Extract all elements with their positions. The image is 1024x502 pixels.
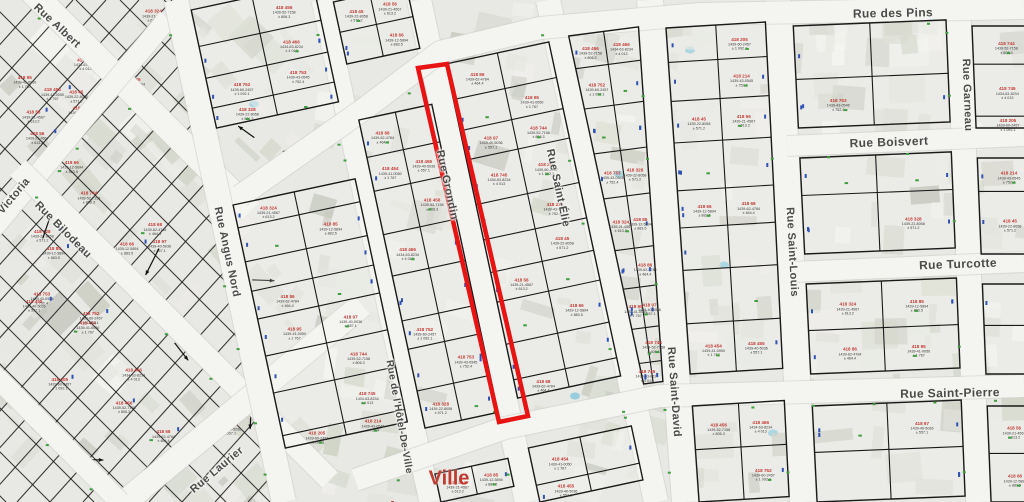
svg-text:± 752.4: ± 752.4 (460, 365, 472, 369)
svg-text:± 806.3: ± 806.3 (426, 207, 438, 211)
svg-text:± 1 092.1: ± 1 092.1 (732, 47, 747, 51)
svg-text:418 454: 418 454 (44, 87, 61, 92)
svg-text:± 752.4: ± 752.4 (292, 80, 304, 84)
svg-text:± 571.2: ± 571.2 (907, 226, 919, 230)
svg-text:± 613.2: ± 613.2 (451, 490, 463, 494)
svg-text:± 464.4: ± 464.4 (471, 82, 483, 86)
svg-text:± 1 092.1: ± 1 092.1 (52, 387, 67, 391)
svg-text:418 745: 418 745 (359, 391, 376, 396)
svg-text:± 557.1: ± 557.1 (485, 145, 497, 149)
svg-text:418 205: 418 205 (1000, 118, 1017, 123)
svg-text:± 752.4: ± 752.4 (367, 428, 379, 432)
svg-text:± 464.4: ± 464.4 (844, 356, 856, 360)
svg-text:418 68: 418 68 (376, 131, 390, 136)
svg-text:± 571.2: ± 571.2 (70, 99, 82, 103)
svg-text:418 205: 418 205 (538, 162, 555, 167)
svg-text:± 464.4: ± 464.4 (157, 439, 169, 443)
svg-text:418 753: 418 753 (290, 70, 307, 75)
map-canvas[interactable]: 418 451439-22-8058± 571.2418 561439-21-4… (0, 0, 1024, 502)
svg-text:± 571.2: ± 571.2 (556, 246, 568, 250)
svg-text:418 56: 418 56 (383, 2, 397, 7)
svg-text:418 95: 418 95 (287, 327, 301, 332)
svg-text:418 744: 418 744 (81, 191, 98, 196)
parcel-block: 418 7531439-43-0545± 752.4 (793, 20, 950, 128)
svg-text:± 464.4: ± 464.4 (149, 232, 161, 236)
svg-text:418 752: 418 752 (234, 82, 251, 87)
svg-text:± 4 013: ± 4 013 (755, 430, 767, 434)
svg-text:± 1 767: ± 1 767 (288, 336, 300, 340)
svg-text:± 557.1: ± 557.1 (750, 351, 762, 355)
svg-text:± 806.3: ± 806.3 (83, 200, 95, 204)
svg-text:418 745: 418 745 (491, 172, 508, 177)
svg-text:418 205: 418 205 (309, 431, 326, 436)
svg-text:418 45: 418 45 (692, 117, 706, 122)
svg-text:418 456: 418 456 (710, 422, 727, 427)
svg-text:± 752.4: ± 752.4 (832, 108, 844, 112)
svg-text:± 1 767: ± 1 767 (384, 176, 396, 180)
parcel-block: 418 971439-40-5036± 557.1 (812, 400, 965, 502)
parcel-block: 418 4561439-52-7158± 806.3418 4661434-63… (692, 401, 789, 502)
svg-text:418 744: 418 744 (645, 340, 662, 345)
svg-text:± 806.3: ± 806.3 (118, 410, 130, 414)
svg-text:418 456: 418 456 (116, 400, 133, 405)
svg-text:± 557.1: ± 557.1 (28, 309, 40, 313)
svg-text:418 324: 418 324 (840, 302, 857, 307)
svg-text:418 753: 418 753 (604, 171, 621, 176)
svg-text:418 97: 418 97 (484, 135, 498, 140)
svg-text:± 4 013: ± 4 013 (128, 378, 140, 382)
svg-text:± 1 767: ± 1 767 (46, 97, 58, 101)
svg-text:± 464.4: ± 464.4 (537, 389, 549, 393)
svg-text:± 557.1: ± 557.1 (560, 493, 572, 497)
svg-text:± 571.2: ± 571.2 (435, 411, 447, 415)
svg-text:418 455: 418 455 (415, 159, 432, 164)
svg-text:418 68: 418 68 (148, 222, 162, 227)
svg-text:418 66: 418 66 (390, 33, 404, 38)
svg-text:± 806.3: ± 806.3 (584, 56, 596, 60)
svg-text:418 85: 418 85 (633, 217, 647, 222)
svg-text:418 68: 418 68 (536, 379, 550, 384)
svg-text:418 86: 418 86 (843, 347, 857, 352)
svg-text:± 4 013: ± 4 013 (493, 182, 505, 186)
svg-text:418 456: 418 456 (276, 5, 293, 10)
svg-text:± 464.4: ± 464.4 (742, 211, 754, 215)
svg-text:± 557.1: ± 557.1 (916, 431, 928, 435)
svg-text:418 45: 418 45 (555, 236, 569, 241)
svg-text:± 752.4: ± 752.4 (549, 212, 561, 216)
svg-text:418 214: 418 214 (1001, 171, 1018, 176)
svg-text:± 883.5: ± 883.5 (121, 251, 133, 255)
svg-text:± 1 767: ± 1 767 (526, 105, 538, 109)
svg-text:418 752: 418 752 (83, 311, 100, 316)
svg-text:418 66: 418 66 (120, 242, 134, 247)
svg-text:418 205: 418 205 (52, 377, 69, 382)
svg-text:418 97: 418 97 (344, 314, 358, 319)
svg-text:418 328: 418 328 (627, 168, 644, 173)
svg-text:418 324: 418 324 (612, 219, 629, 224)
svg-text:± 571.2: ± 571.2 (36, 239, 48, 243)
svg-text:418 744: 418 744 (350, 351, 367, 356)
parcel-block: 418 2141439-43-0545± 752.4418 451439-22-… (977, 158, 1024, 254)
svg-text:± 4 013: ± 4 013 (1001, 96, 1013, 100)
svg-text:418 454: 418 454 (705, 343, 722, 348)
svg-text:418 56: 418 56 (515, 277, 529, 282)
svg-text:418 752: 418 752 (755, 468, 772, 473)
svg-text:418 466: 418 466 (399, 247, 416, 252)
svg-text:418 205: 418 205 (731, 37, 748, 42)
svg-text:± 464.4: ± 464.4 (281, 304, 293, 308)
svg-text:± 613.2: ± 613.2 (515, 287, 527, 291)
svg-text:418 68: 418 68 (156, 429, 170, 434)
svg-text:418 85: 418 85 (324, 222, 338, 227)
svg-text:± 613.2: ± 613.2 (31, 141, 43, 145)
svg-text:± 571.2: ± 571.2 (629, 177, 641, 181)
svg-text:418 753: 418 753 (458, 355, 475, 360)
svg-text:418 456: 418 456 (582, 46, 599, 51)
svg-text:418 95: 418 95 (525, 95, 539, 100)
svg-text:± 1 092.1: ± 1 092.1 (1000, 128, 1015, 132)
svg-text:± 806.3: ± 806.3 (278, 15, 290, 19)
svg-text:418 86: 418 86 (470, 72, 484, 77)
svg-text:± 613.2: ± 613.2 (615, 229, 627, 233)
svg-text:± 1 092.1: ± 1 092.1 (234, 92, 249, 96)
svg-text:± 1 092.1: ± 1 092.1 (589, 92, 604, 96)
svg-text:418 466: 418 466 (613, 42, 630, 47)
svg-text:± 571.2: ± 571.2 (350, 19, 362, 23)
parcel-block: 418 3241439-21-4567± 613.2418 851439-12-… (806, 278, 960, 374)
parcel-block (982, 284, 1024, 374)
svg-text:418 456: 418 456 (424, 198, 441, 203)
svg-text:± 883.5: ± 883.5 (634, 227, 646, 231)
svg-text:418 85: 418 85 (484, 473, 498, 478)
parcel-block: 418 561439-21-4567± 613.2418 661439-12-5… (987, 406, 1024, 502)
svg-text:± 613.2: ± 613.2 (384, 11, 396, 15)
svg-text:± 1 092.1: ± 1 092.1 (417, 337, 432, 341)
svg-text:418 66: 418 66 (697, 204, 711, 209)
svg-text:418 454: 418 454 (382, 166, 399, 171)
svg-text:418 324: 418 324 (260, 205, 277, 210)
svg-text:± 883.5: ± 883.5 (390, 42, 402, 46)
svg-text:± 464.4: ± 464.4 (639, 272, 651, 276)
svg-text:418 45: 418 45 (69, 90, 83, 95)
svg-text:± 1 767: ± 1 767 (19, 85, 31, 89)
svg-text:418 455: 418 455 (748, 341, 765, 346)
svg-text:± 752.4: ± 752.4 (606, 180, 618, 184)
svg-text:418 95: 418 95 (912, 344, 926, 349)
svg-text:418 45: 418 45 (1003, 219, 1017, 224)
svg-text:418 752: 418 752 (416, 327, 433, 332)
street-rue-turcotte[interactable] (793, 262, 1024, 272)
svg-text:418 744: 418 744 (998, 41, 1015, 46)
svg-text:418 466: 418 466 (752, 420, 769, 425)
svg-text:418 745: 418 745 (999, 86, 1016, 91)
svg-text:418 95: 418 95 (18, 75, 32, 80)
svg-text:± 613.2: ± 613.2 (262, 215, 274, 219)
svg-text:418 66: 418 66 (1008, 474, 1022, 479)
svg-text:± 571.2: ± 571.2 (693, 126, 705, 130)
svg-text:418 744: 418 744 (530, 125, 547, 130)
svg-text:± 883.5: ± 883.5 (48, 256, 60, 260)
svg-text:± 4 013: ± 4 013 (641, 379, 653, 383)
svg-text:418 753: 418 753 (830, 98, 847, 103)
svg-text:± 4 013: ± 4 013 (615, 52, 627, 56)
svg-text:418 753: 418 753 (34, 292, 51, 297)
svg-text:± 557.1: ± 557.1 (153, 249, 165, 253)
svg-text:± 557.1: ± 557.1 (418, 169, 430, 173)
svg-text:418 752: 418 752 (589, 83, 606, 88)
svg-text:418 214: 418 214 (547, 202, 564, 207)
svg-text:± 883.5: ± 883.5 (325, 232, 337, 236)
svg-text:± 613.2: ± 613.2 (842, 311, 854, 315)
svg-text:± 1 767: ± 1 767 (554, 466, 566, 470)
svg-text:418 328: 418 328 (905, 216, 922, 221)
map-viewport[interactable]: 418 451439-22-8058± 571.2418 561439-21-4… (0, 0, 1024, 502)
svg-text:± 806.3: ± 806.3 (352, 361, 364, 365)
svg-text:± 571.2: ± 571.2 (1004, 229, 1016, 233)
svg-text:± 1 767: ± 1 767 (82, 330, 94, 334)
parcel-block: 418 7441439-52-7158± 806.3418 7451434-63… (972, 26, 1024, 132)
svg-text:418 56: 418 56 (30, 131, 44, 136)
svg-text:418 45: 418 45 (349, 9, 363, 14)
svg-text:418 86: 418 86 (638, 263, 652, 268)
svg-text:418 97: 418 97 (153, 239, 167, 244)
svg-text:418 328: 418 328 (432, 401, 449, 406)
svg-text:418 97: 418 97 (915, 421, 929, 426)
svg-text:418 97: 418 97 (642, 302, 656, 307)
svg-text:± 806.3: ± 806.3 (1000, 51, 1012, 55)
svg-text:418 66: 418 66 (570, 303, 584, 308)
svg-text:± 1 092.1: ± 1 092.1 (83, 321, 98, 325)
street-rue-boisvert[interactable] (787, 136, 1024, 146)
svg-text:418 68: 418 68 (742, 201, 756, 206)
svg-text:± 883.5: ± 883.5 (66, 170, 78, 174)
svg-text:418 455: 418 455 (558, 484, 575, 489)
svg-text:± 883.5: ± 883.5 (571, 313, 583, 317)
svg-text:418 745: 418 745 (639, 369, 656, 374)
svg-text:418 86: 418 86 (281, 294, 295, 299)
svg-text:± 806.3: ± 806.3 (713, 432, 725, 436)
svg-text:418 85: 418 85 (910, 299, 924, 304)
svg-text:418 66: 418 66 (65, 160, 79, 165)
svg-text:418 85: 418 85 (47, 246, 61, 251)
svg-text:418 455: 418 455 (26, 299, 43, 304)
svg-text:418 214: 418 214 (365, 419, 382, 424)
parcel-block: 418 3281439-22-8058± 571.2 (800, 152, 955, 254)
svg-text:± 613.2: ± 613.2 (27, 120, 39, 124)
svg-text:418 324: 418 324 (449, 480, 466, 485)
svg-text:418 466: 418 466 (125, 368, 142, 373)
svg-text:418 56: 418 56 (1007, 426, 1021, 431)
svg-text:418 454: 418 454 (552, 457, 569, 462)
svg-text:418 328: 418 328 (239, 107, 256, 112)
svg-text:418 214: 418 214 (733, 74, 750, 79)
svg-text:418 466: 418 466 (283, 39, 300, 44)
svg-text:418 56: 418 56 (26, 110, 40, 115)
svg-text:418 56: 418 56 (737, 114, 751, 119)
svg-text:418 328: 418 328 (34, 229, 51, 234)
